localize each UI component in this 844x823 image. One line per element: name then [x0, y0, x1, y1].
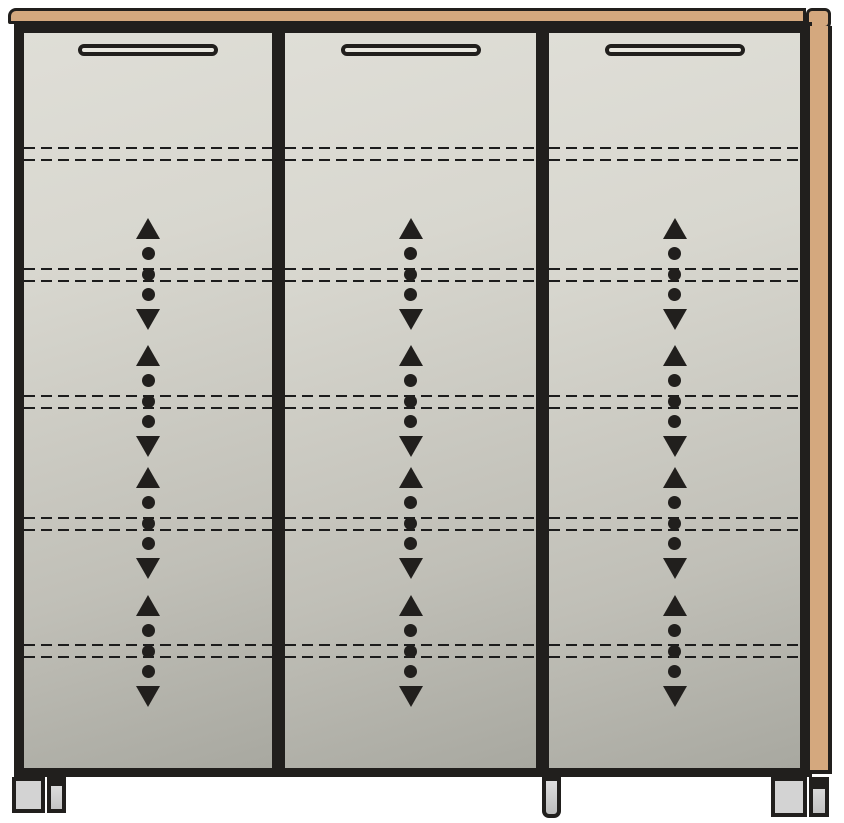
- dot-icon: [404, 645, 417, 658]
- shelf-dashed-line: [24, 159, 272, 161]
- down-arrow-icon: [399, 686, 423, 707]
- door-middle: [285, 33, 536, 768]
- up-arrow-icon: [399, 345, 423, 366]
- shelf-adjust-arrows: [662, 595, 688, 707]
- down-arrow-icon: [663, 436, 687, 457]
- cabinet-foot-right-wide: [771, 777, 807, 817]
- up-arrow-icon: [136, 218, 160, 239]
- dot-icon: [668, 395, 681, 408]
- shelf-adjust-arrows: [398, 595, 424, 707]
- shelf-dashed-line: [285, 159, 536, 161]
- dot-icon: [668, 247, 681, 260]
- up-arrow-icon: [663, 467, 687, 488]
- dot-icon: [404, 415, 417, 428]
- door-handle: [78, 44, 218, 56]
- down-arrow-icon: [399, 309, 423, 330]
- cabinet-diagram: [0, 0, 844, 823]
- down-arrow-icon: [136, 436, 160, 457]
- cabinet-foot-left-wide: [12, 777, 45, 813]
- up-arrow-icon: [136, 467, 160, 488]
- down-arrow-icon: [663, 558, 687, 579]
- down-arrow-icon: [136, 309, 160, 330]
- down-arrow-icon: [663, 686, 687, 707]
- dot-icon: [142, 624, 155, 637]
- dot-icon: [142, 537, 155, 550]
- dot-icon: [404, 247, 417, 260]
- dot-icon: [404, 288, 417, 301]
- cabinet-side-panel: [806, 26, 832, 774]
- up-arrow-icon: [663, 345, 687, 366]
- dot-icon: [668, 537, 681, 550]
- dot-icon: [142, 517, 155, 530]
- dot-icon: [668, 415, 681, 428]
- cabinet-foot-middle: [542, 777, 561, 818]
- dot-icon: [142, 665, 155, 678]
- dot-icon: [142, 268, 155, 281]
- dot-icon: [142, 395, 155, 408]
- shelf-adjust-arrows: [398, 345, 424, 457]
- dot-icon: [142, 496, 155, 509]
- dot-icon: [668, 665, 681, 678]
- down-arrow-icon: [663, 309, 687, 330]
- up-arrow-icon: [663, 218, 687, 239]
- shelf-adjust-arrows: [135, 595, 161, 707]
- shelf-dashed-line: [285, 147, 536, 149]
- shelf-adjust-arrows: [398, 467, 424, 579]
- dot-icon: [404, 537, 417, 550]
- shelf-adjust-arrows: [662, 345, 688, 457]
- down-arrow-icon: [136, 558, 160, 579]
- dot-icon: [668, 268, 681, 281]
- dot-icon: [142, 645, 155, 658]
- up-arrow-icon: [663, 595, 687, 616]
- up-arrow-icon: [136, 345, 160, 366]
- dot-icon: [142, 247, 155, 260]
- dot-icon: [404, 374, 417, 387]
- dot-icon: [142, 415, 155, 428]
- dot-icon: [668, 496, 681, 509]
- dot-icon: [404, 268, 417, 281]
- shelf-adjust-arrows: [135, 467, 161, 579]
- down-arrow-icon: [136, 686, 160, 707]
- dot-icon: [668, 374, 681, 387]
- dot-icon: [142, 288, 155, 301]
- cabinet-foot-left-narrow: [47, 777, 66, 813]
- up-arrow-icon: [399, 467, 423, 488]
- door-right: [549, 33, 800, 768]
- cabinet-foot-right-narrow: [809, 777, 829, 817]
- shelf-adjust-arrows: [662, 467, 688, 579]
- shelf-adjust-arrows: [135, 345, 161, 457]
- shelf-adjust-arrows: [135, 218, 161, 330]
- down-arrow-icon: [399, 436, 423, 457]
- dot-icon: [668, 645, 681, 658]
- door-handle: [605, 44, 745, 56]
- shelf-dashed-line: [549, 147, 800, 149]
- dot-icon: [668, 517, 681, 530]
- cabinet-body: [14, 22, 812, 777]
- up-arrow-icon: [399, 595, 423, 616]
- dot-icon: [404, 665, 417, 678]
- dot-icon: [668, 624, 681, 637]
- up-arrow-icon: [136, 595, 160, 616]
- dot-icon: [404, 496, 417, 509]
- dot-icon: [404, 517, 417, 530]
- dot-icon: [404, 395, 417, 408]
- shelf-dashed-line: [549, 159, 800, 161]
- dot-icon: [668, 288, 681, 301]
- dot-icon: [404, 624, 417, 637]
- shelf-adjust-arrows: [662, 218, 688, 330]
- shelf-dashed-line: [24, 147, 272, 149]
- shelf-adjust-arrows: [398, 218, 424, 330]
- up-arrow-icon: [399, 218, 423, 239]
- door-left: [24, 33, 272, 768]
- door-handle: [341, 44, 481, 56]
- down-arrow-icon: [399, 558, 423, 579]
- dot-icon: [142, 374, 155, 387]
